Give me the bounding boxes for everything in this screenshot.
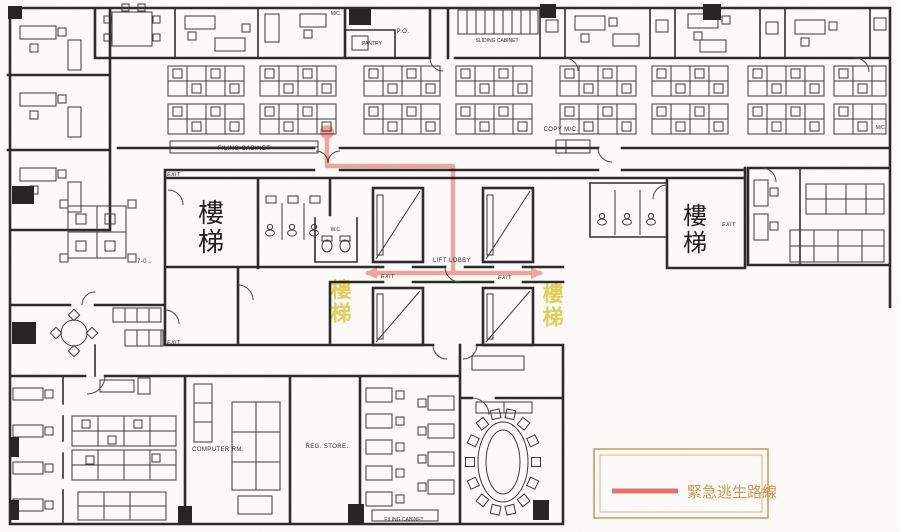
exit-label: EXIT <box>498 275 512 281</box>
stairs-label-left: 樓梯 <box>198 198 224 257</box>
stairs-label-yellow-right: 樓梯 <box>543 282 564 330</box>
reg-store-label: REG. STORE. <box>306 444 349 450</box>
po-room-label: P.O. <box>397 29 410 35</box>
legend-label: 緊急逃生路線 <box>687 484 777 501</box>
sliding-cabinet-label: SLIDING CABINET <box>475 38 518 44</box>
pantry-label: PANTRY <box>362 41 382 47</box>
machine-label-right: M/C. <box>876 125 887 131</box>
wc-label: W.C. <box>331 227 342 233</box>
copy-machine-label: COPY M/C. <box>544 127 579 133</box>
stairs-label-yellow-left: 樓梯 <box>331 278 352 326</box>
floor-plan-page: FILING CABINET COPY M/C. M/C. M/C. P.O. … <box>0 0 900 532</box>
stairs-label-right: 樓梯 <box>683 203 707 257</box>
floor-plan: FILING CABINET COPY M/C. M/C. M/C. P.O. … <box>0 0 900 532</box>
room-7-0-label: 7-0→ <box>137 259 153 265</box>
exit-label: EXIT <box>167 340 181 346</box>
filing-cabinet-label: FILING CABINET <box>218 146 271 152</box>
filing-cabinet-bottom-label: FILING CABINET <box>384 517 423 523</box>
computer-room-label: COMPUTER RM. <box>192 447 244 453</box>
exit-label: EXIT <box>167 172 181 178</box>
machine-label-top: M/C. <box>331 11 342 17</box>
exit-label: EXIT <box>722 222 736 228</box>
